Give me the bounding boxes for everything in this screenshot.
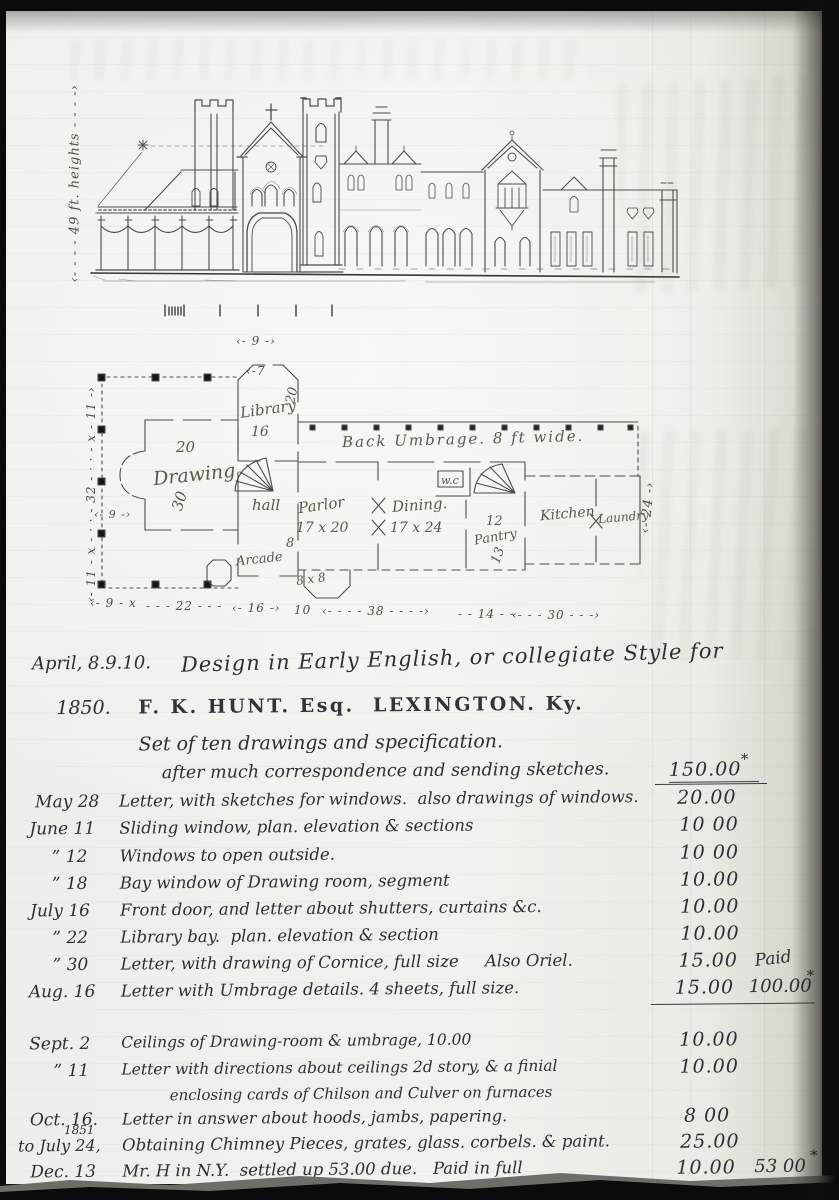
footnote-star: * xyxy=(741,750,749,768)
fee-ledger: April, 8.9.10. Design in Early English, … xyxy=(0,0,839,1200)
entry-amount: 10.00 xyxy=(680,922,770,945)
entry-description: Design in Early English, or collegiate S… xyxy=(181,639,724,677)
entry-description: Letter, with sketches for windows. also … xyxy=(119,787,639,811)
entry-amount: 10.00 xyxy=(679,1055,769,1078)
entry-description: Library bay. plan. elevation & section xyxy=(120,925,439,947)
entry-description-continued: enclosing cards of Chilson and Culver on… xyxy=(170,1083,553,1104)
total-underline xyxy=(651,1003,815,1005)
entry-year-superscript: 1851 xyxy=(64,1123,95,1137)
entry-date: April, 8.9.10. xyxy=(32,653,132,675)
entry-amount: 10.00 xyxy=(680,895,770,918)
entry-amount: 20.00 xyxy=(677,786,767,809)
entry-description: Letter in answer about hoods, jambs, pap… xyxy=(122,1106,507,1128)
entry-description: Ceilings of Drawing-room & umbrage, 10.0… xyxy=(121,1031,471,1052)
entry-description: Set of ten drawings and specification. xyxy=(139,730,504,755)
torn-page-edge xyxy=(0,1164,839,1200)
entry-description: Bay window of Drawing room, segment xyxy=(120,871,450,893)
entry-description: Windows to open outside. xyxy=(120,845,336,866)
ledger-row: 1850. F. K. HUNT. Esq. LEXINGTON. Ky. xyxy=(0,690,837,723)
entry-description: after much correspondence and sending sk… xyxy=(162,759,610,783)
amount-underline xyxy=(655,783,767,785)
entry-description: Sliding window, plan. elevation & sectio… xyxy=(119,816,473,838)
account-page-photo: ‹- - - - 49 ft. heights - - - -› ‹- 11 -… xyxy=(0,0,839,1200)
entry-description: Letter, with drawing of Cornice, full si… xyxy=(120,951,572,974)
entry-amount: 10 00 xyxy=(679,813,769,836)
entry-date: Aug. 16 xyxy=(29,982,129,1003)
entry-date: July 16 xyxy=(30,901,130,922)
entry-amount: 25.00 xyxy=(680,1130,770,1153)
entry-amount: 10.00 xyxy=(680,868,770,891)
paid-note: Paid xyxy=(754,947,793,971)
entry-description: Obtaining Chimney Pieces, grates, glass.… xyxy=(122,1131,610,1154)
page-right-edge-shadow xyxy=(793,0,839,1200)
entry-description: Letter with Umbrage details. 4 sheets, f… xyxy=(121,978,520,1000)
entry-date: Sept. 2 xyxy=(29,1034,129,1055)
entry-description: Front door, and letter about shutters, c… xyxy=(120,897,542,920)
ledger-row: Set of ten drawings and specification. xyxy=(0,727,838,760)
entry-amount: 8 00 xyxy=(684,1104,774,1127)
entry-description: Letter with directions about ceilings 2d… xyxy=(121,1057,557,1079)
entry-amount: 10.00 xyxy=(679,1028,769,1051)
entry-date: June 11 xyxy=(29,819,129,840)
entry-amount: 10 00 xyxy=(680,841,770,864)
ledger-row: April, 8.9.10. Design in Early English, … xyxy=(0,646,837,679)
entry-date: to July 24, xyxy=(18,1136,118,1156)
client-name: F. K. HUNT. Esq. LEXINGTON. Ky. xyxy=(138,693,584,719)
